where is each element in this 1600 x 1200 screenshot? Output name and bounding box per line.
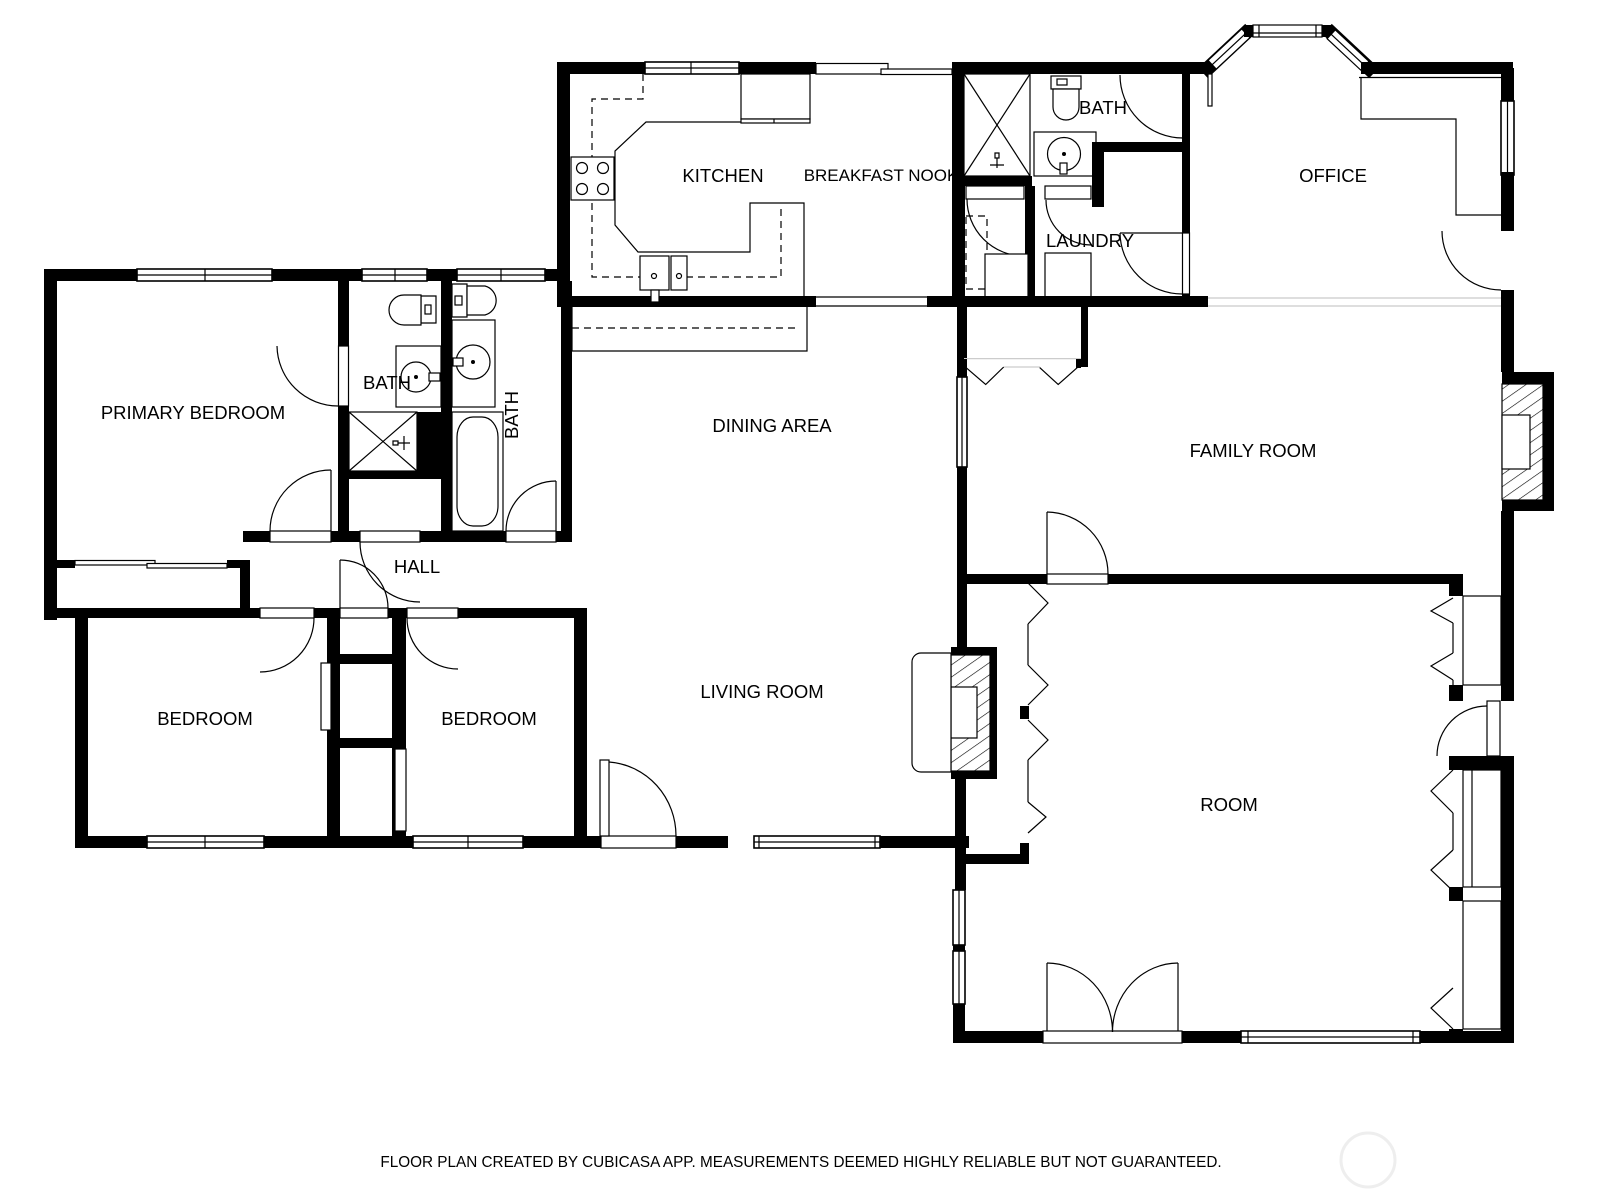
svg-text:PRIMARY BEDROOM: PRIMARY BEDROOM: [101, 402, 285, 423]
svg-text:KITCHEN: KITCHEN: [682, 165, 763, 186]
svg-text:BATH: BATH: [501, 391, 522, 439]
svg-text:HALL: HALL: [394, 556, 440, 577]
svg-text:FLOOR PLAN CREATED BY CUBICASA: FLOOR PLAN CREATED BY CUBICASA APP. MEAS…: [380, 1154, 1221, 1171]
svg-text:BATH: BATH: [363, 372, 411, 393]
svg-text:ROOM: ROOM: [1200, 794, 1258, 815]
svg-text:DINING AREA: DINING AREA: [712, 415, 832, 436]
svg-text:FAMILY ROOM: FAMILY ROOM: [1190, 440, 1317, 461]
svg-text:BEDROOM: BEDROOM: [441, 708, 537, 729]
svg-text:LAUNDRY: LAUNDRY: [1046, 230, 1134, 251]
svg-text:BEDROOM: BEDROOM: [157, 708, 253, 729]
svg-text:LIVING ROOM: LIVING ROOM: [700, 681, 823, 702]
svg-text:BATH: BATH: [1079, 97, 1127, 118]
svg-text:OFFICE: OFFICE: [1299, 165, 1367, 186]
svg-text:BREAKFAST NOOK: BREAKFAST NOOK: [804, 166, 959, 185]
